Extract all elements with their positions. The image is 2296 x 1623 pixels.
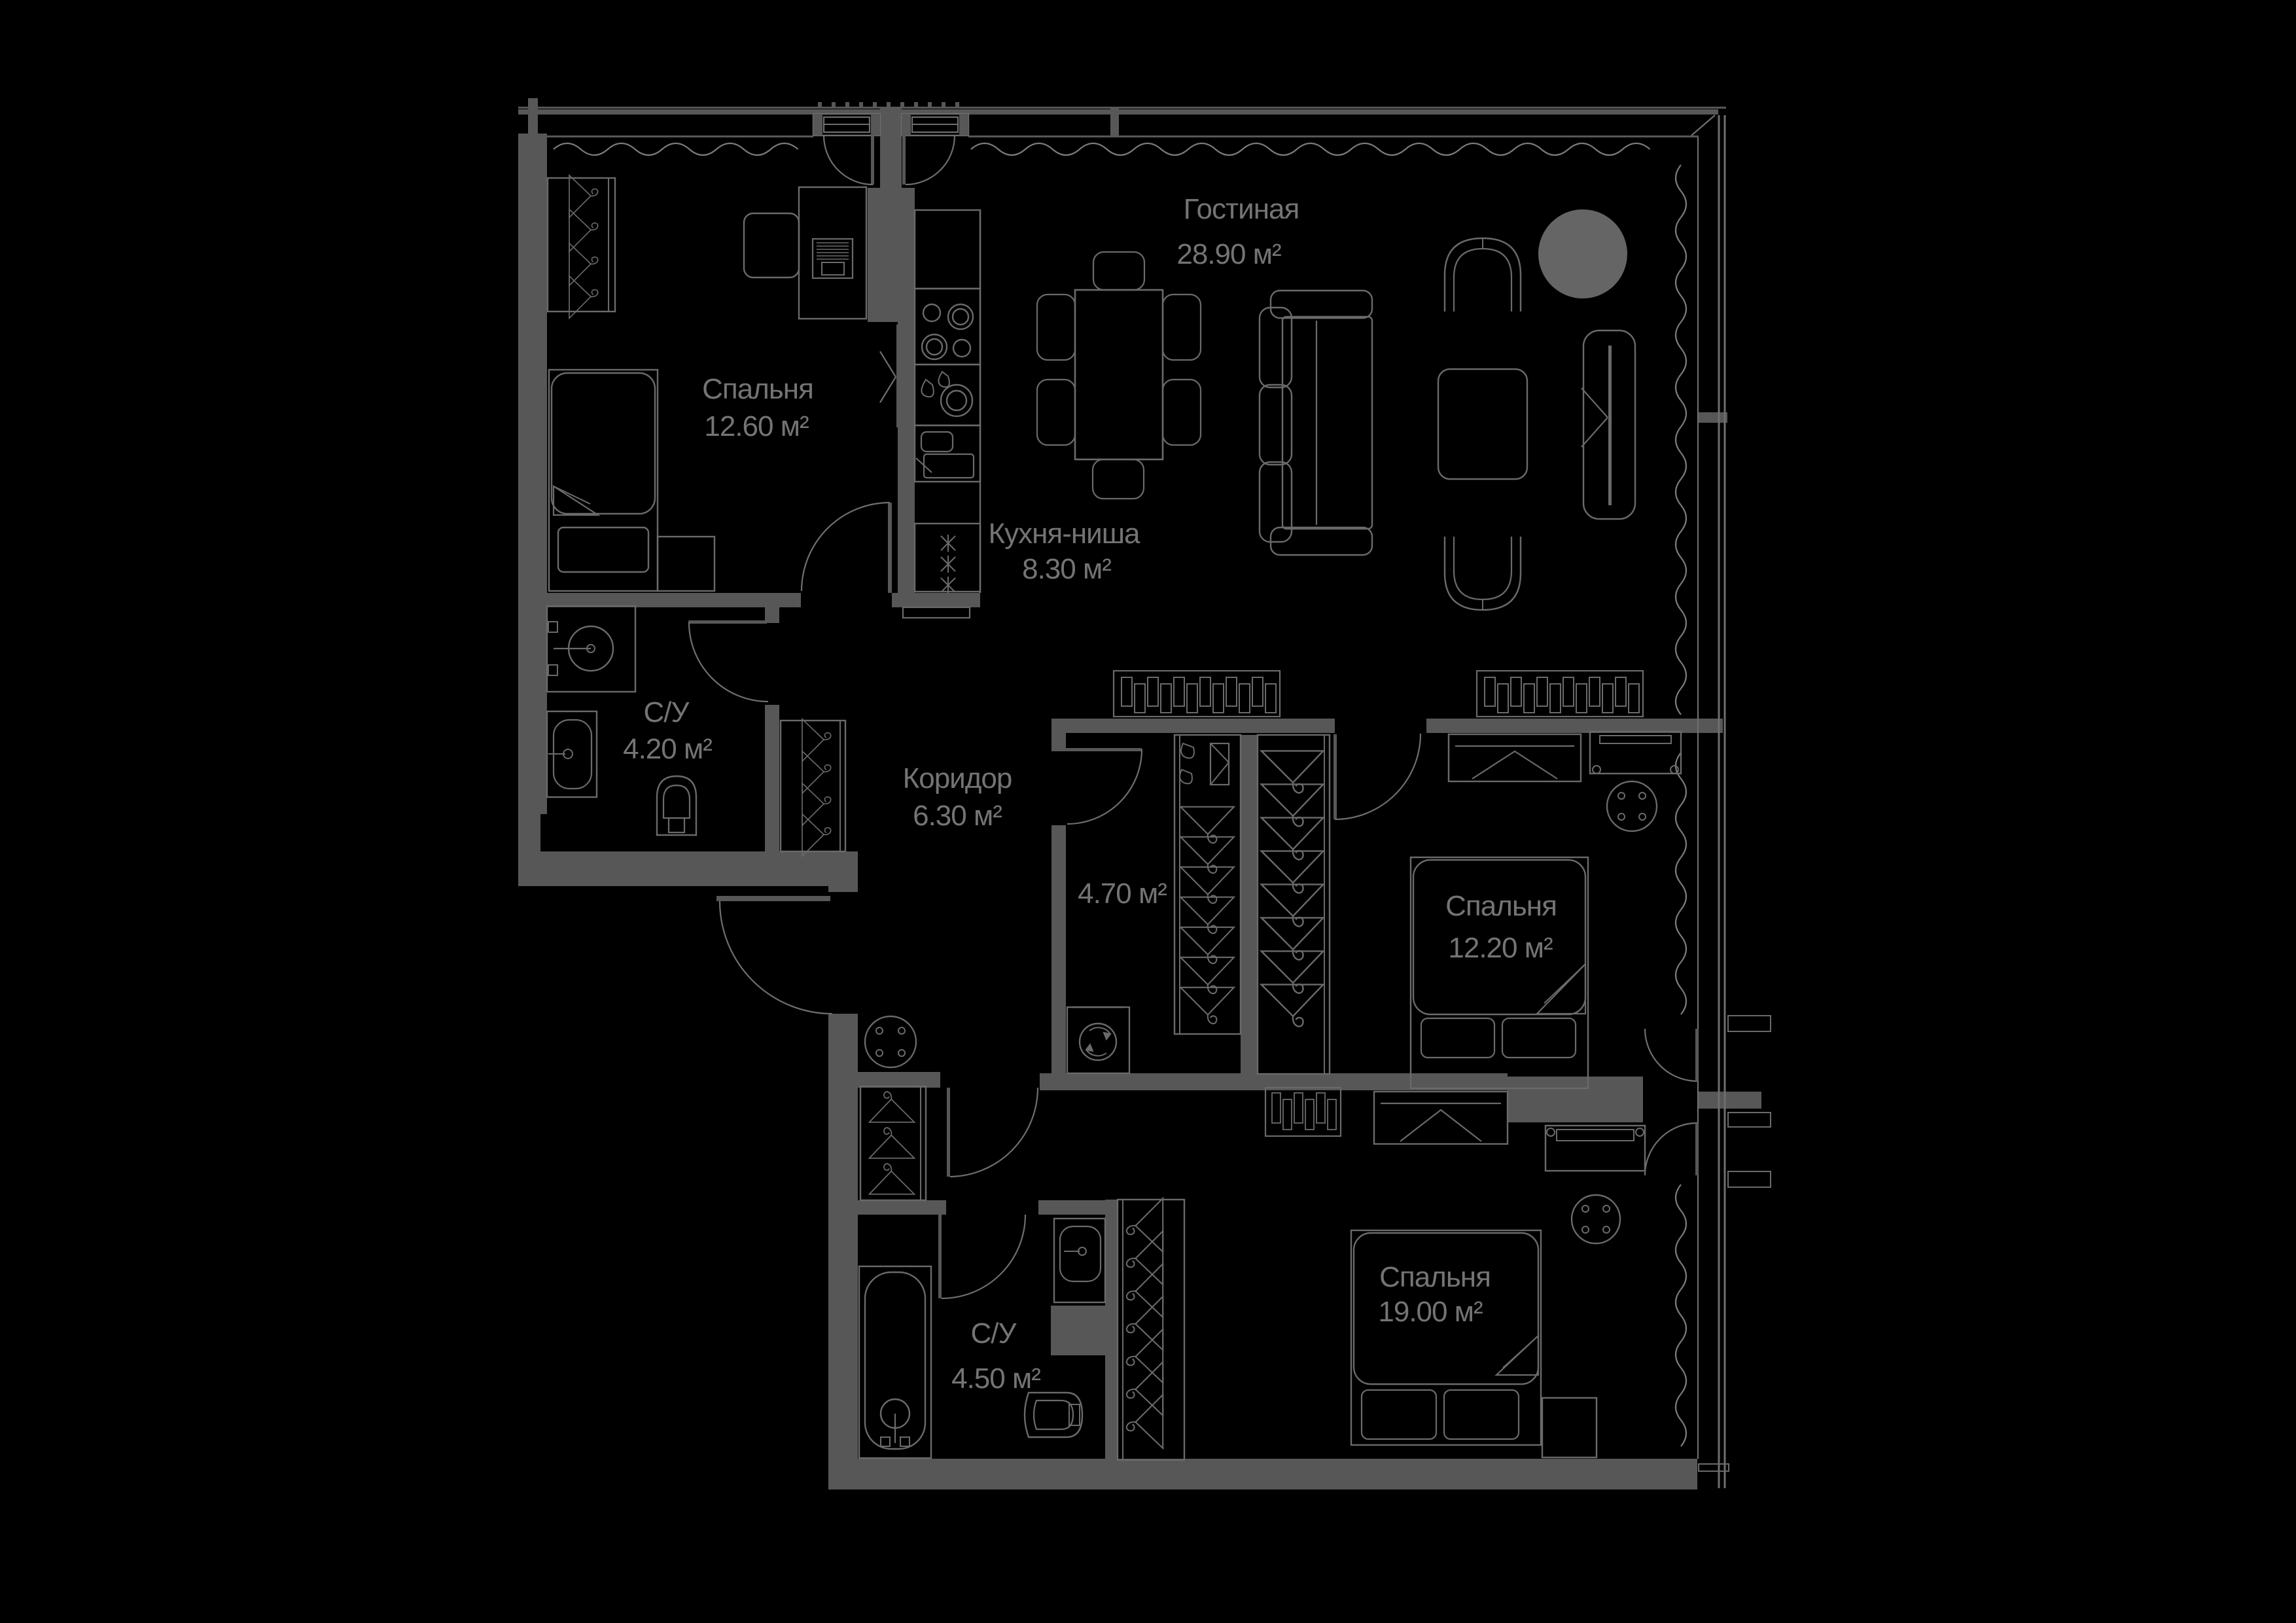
svg-text:Кухня-ниша: Кухня-ниша xyxy=(988,518,1140,550)
svg-text:28.90 м²: 28.90 м² xyxy=(1176,238,1281,270)
svg-text:Коридор: Коридор xyxy=(903,762,1012,794)
svg-text:12.60 м²: 12.60 м² xyxy=(704,410,809,442)
svg-text:Спальня: Спальня xyxy=(1445,890,1557,922)
svg-text:Спальня: Спальня xyxy=(702,373,813,405)
svg-text:Спальня: Спальня xyxy=(1379,1261,1491,1293)
svg-text:4.50 м²: 4.50 м² xyxy=(951,1363,1040,1395)
svg-text:12.20 м²: 12.20 м² xyxy=(1448,932,1553,964)
svg-text:4.20 м²: 4.20 м² xyxy=(623,733,712,765)
svg-text:19.00 м²: 19.00 м² xyxy=(1378,1296,1483,1328)
svg-text:8.30 м²: 8.30 м² xyxy=(1022,553,1111,585)
svg-text:С/У: С/У xyxy=(971,1317,1017,1349)
svg-text:4.70 м²: 4.70 м² xyxy=(1078,878,1167,910)
svg-text:С/У: С/У xyxy=(644,696,690,728)
svg-text:Гостиная: Гостиная xyxy=(1184,193,1299,225)
svg-text:6.30 м²: 6.30 м² xyxy=(913,800,1002,832)
